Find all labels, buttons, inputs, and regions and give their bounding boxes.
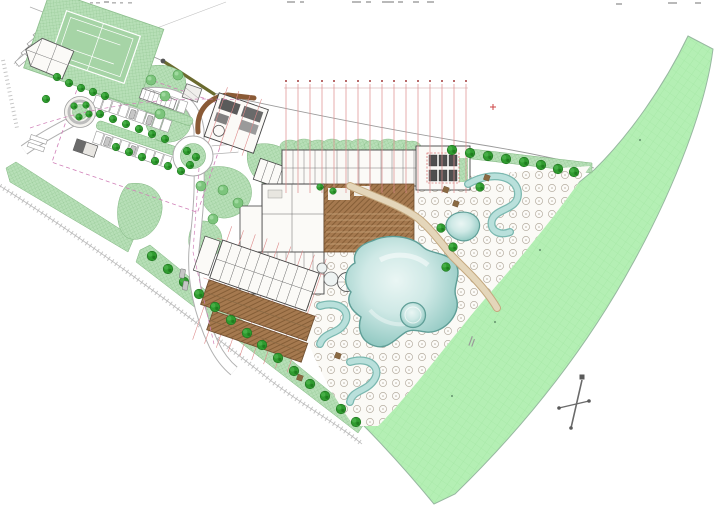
north-wing-building	[282, 150, 418, 186]
site-plan-drawing	[0, 0, 726, 510]
grid-axis-tick-marks	[285, 80, 467, 82]
survey-cross-mark	[490, 104, 496, 110]
site-plan-canvas	[0, 0, 726, 510]
kids-pool	[446, 212, 479, 241]
top-edge-text-fragments	[90, 1, 701, 5]
round-pool	[401, 303, 426, 328]
north-arrow-icon	[557, 375, 591, 430]
spa-annex-building	[416, 146, 470, 190]
